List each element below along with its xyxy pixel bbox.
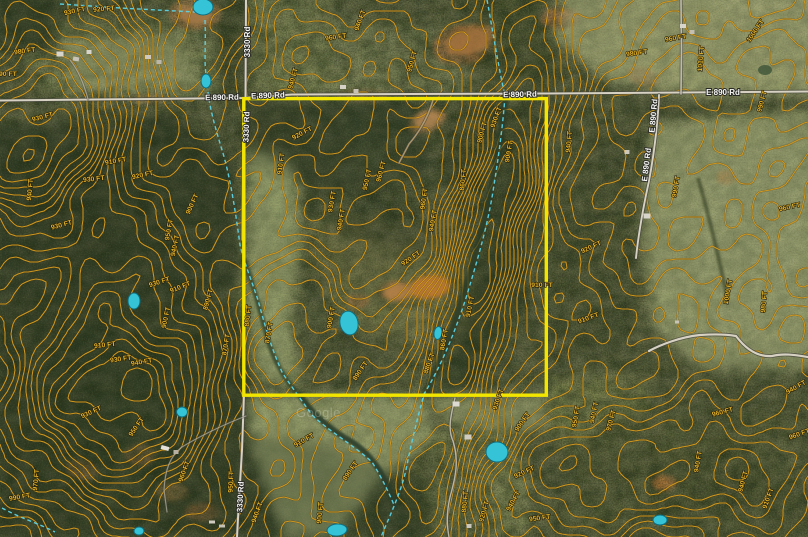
svg-text:3330 Rd: 3330 Rd [243,27,252,58]
svg-text:Google: Google [296,405,341,420]
svg-text:E 890 Rd: E 890 Rd [251,90,285,100]
svg-text:990 FT: 990 FT [0,71,18,78]
svg-text:E 890 Rd: E 890 Rd [503,90,537,100]
svg-text:3330 Rd: 3330 Rd [235,481,246,512]
svg-text:E 890 Rd: E 890 Rd [706,88,740,97]
svg-text:3330 Rd: 3330 Rd [241,111,251,142]
svg-text:910 FT: 910 FT [531,282,553,289]
svg-text:E 890 Rd: E 890 Rd [205,93,239,103]
svg-text:950 FT: 950 FT [228,470,236,493]
